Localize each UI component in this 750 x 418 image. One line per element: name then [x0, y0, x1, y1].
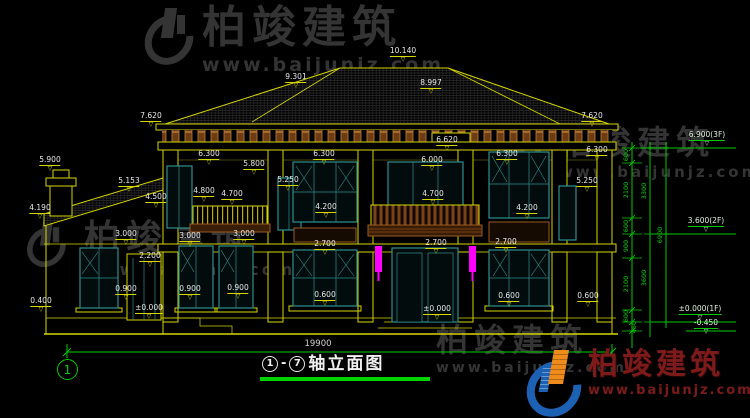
brand-logo-site: www.baijunjz.com — [588, 383, 750, 398]
rafter-tails — [162, 130, 612, 142]
brand-logo: 柏竣建筑 www.baijunjz.com — [528, 348, 750, 410]
axis-number: 1 — [64, 363, 72, 377]
brand-logo-icon — [528, 348, 580, 410]
title-text: 轴立面图 — [308, 355, 384, 372]
cornice-band — [158, 142, 616, 150]
axis-circle-to: 7 — [289, 356, 305, 372]
axis-bubble-1: 1 — [57, 359, 78, 380]
center-eave-step — [432, 133, 470, 142]
side-door — [127, 254, 161, 320]
french-door — [388, 162, 463, 207]
chimney — [46, 170, 76, 216]
entry-steps — [378, 322, 472, 328]
title-dash: - — [281, 356, 286, 371]
title-underline — [260, 377, 430, 381]
axis-circle-from: 1 — [262, 356, 278, 372]
drawing-title: 1 - 7 轴立面图 — [262, 355, 384, 372]
overall-width-dim: 19900 — [304, 339, 331, 349]
main-entrance-door — [392, 248, 458, 322]
eave-fascia — [156, 124, 618, 130]
cad-canvas: 柏竣建筑 www.baijunjz.com 柏竣建筑 www.baijunjz.… — [0, 0, 750, 418]
brand-logo-text: 柏竣建筑 — [588, 348, 750, 381]
